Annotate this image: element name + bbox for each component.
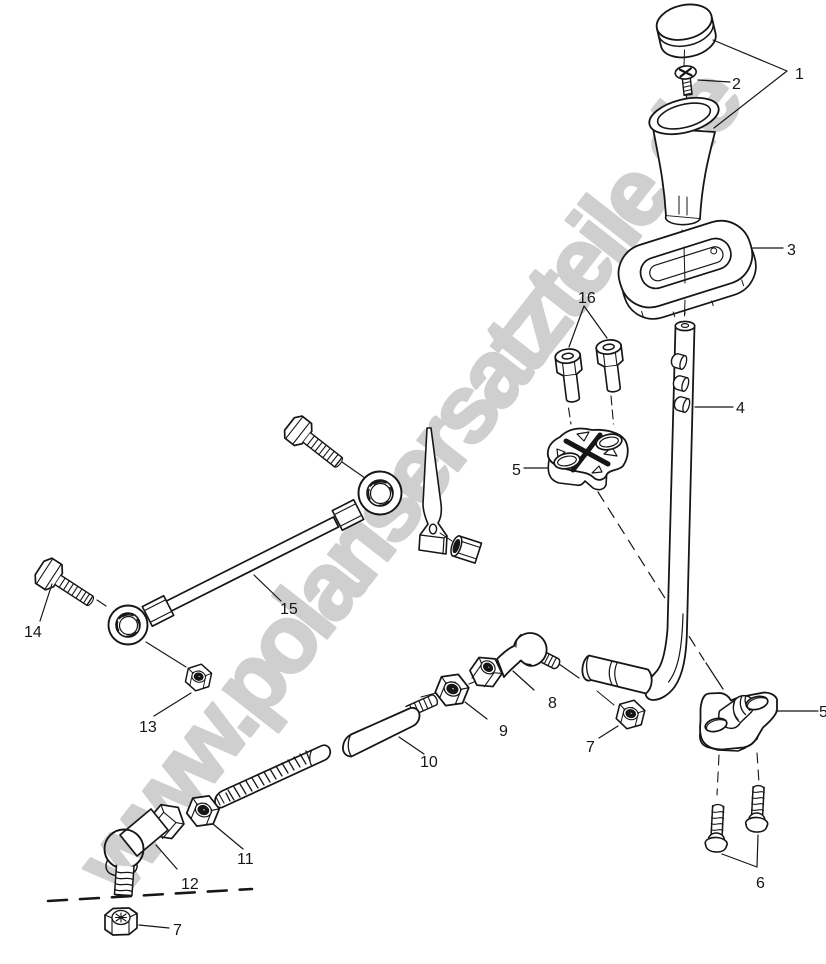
svg-text:12: 12	[181, 876, 199, 893]
svg-text:15: 15	[280, 601, 298, 618]
svg-text:1: 1	[795, 66, 804, 83]
svg-text:7: 7	[586, 739, 595, 756]
svg-text:13: 13	[139, 719, 157, 736]
svg-text:5: 5	[512, 462, 521, 479]
svg-text:5: 5	[819, 704, 826, 721]
svg-text:7: 7	[173, 922, 182, 939]
svg-text:16: 16	[578, 290, 596, 307]
svg-text:3: 3	[787, 242, 796, 259]
svg-text:6: 6	[756, 875, 765, 892]
svg-text:2: 2	[732, 76, 741, 93]
svg-text:11: 11	[237, 851, 254, 868]
svg-text:10: 10	[420, 754, 438, 771]
svg-text:4: 4	[736, 400, 745, 417]
svg-text:8: 8	[548, 695, 557, 712]
svg-text:9: 9	[499, 723, 508, 740]
svg-text:14: 14	[24, 624, 42, 641]
